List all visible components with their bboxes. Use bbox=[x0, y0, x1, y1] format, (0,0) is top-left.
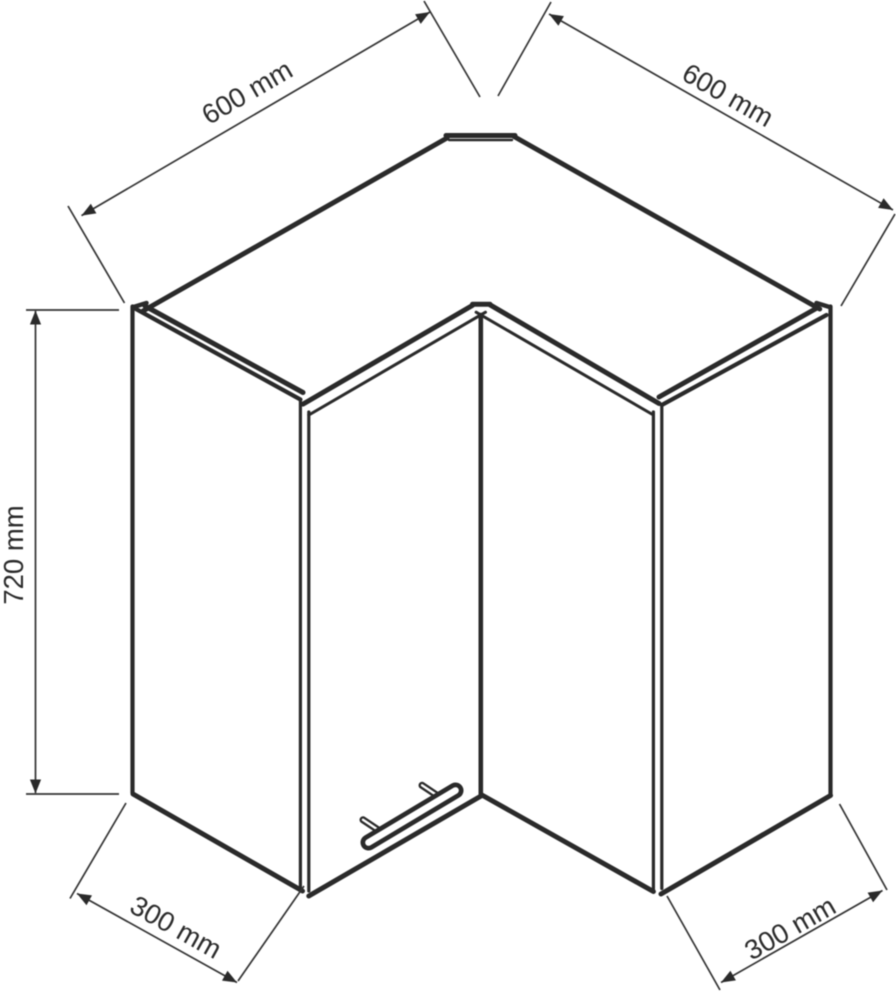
svg-text:720 mm: 720 mm bbox=[0, 505, 29, 604]
